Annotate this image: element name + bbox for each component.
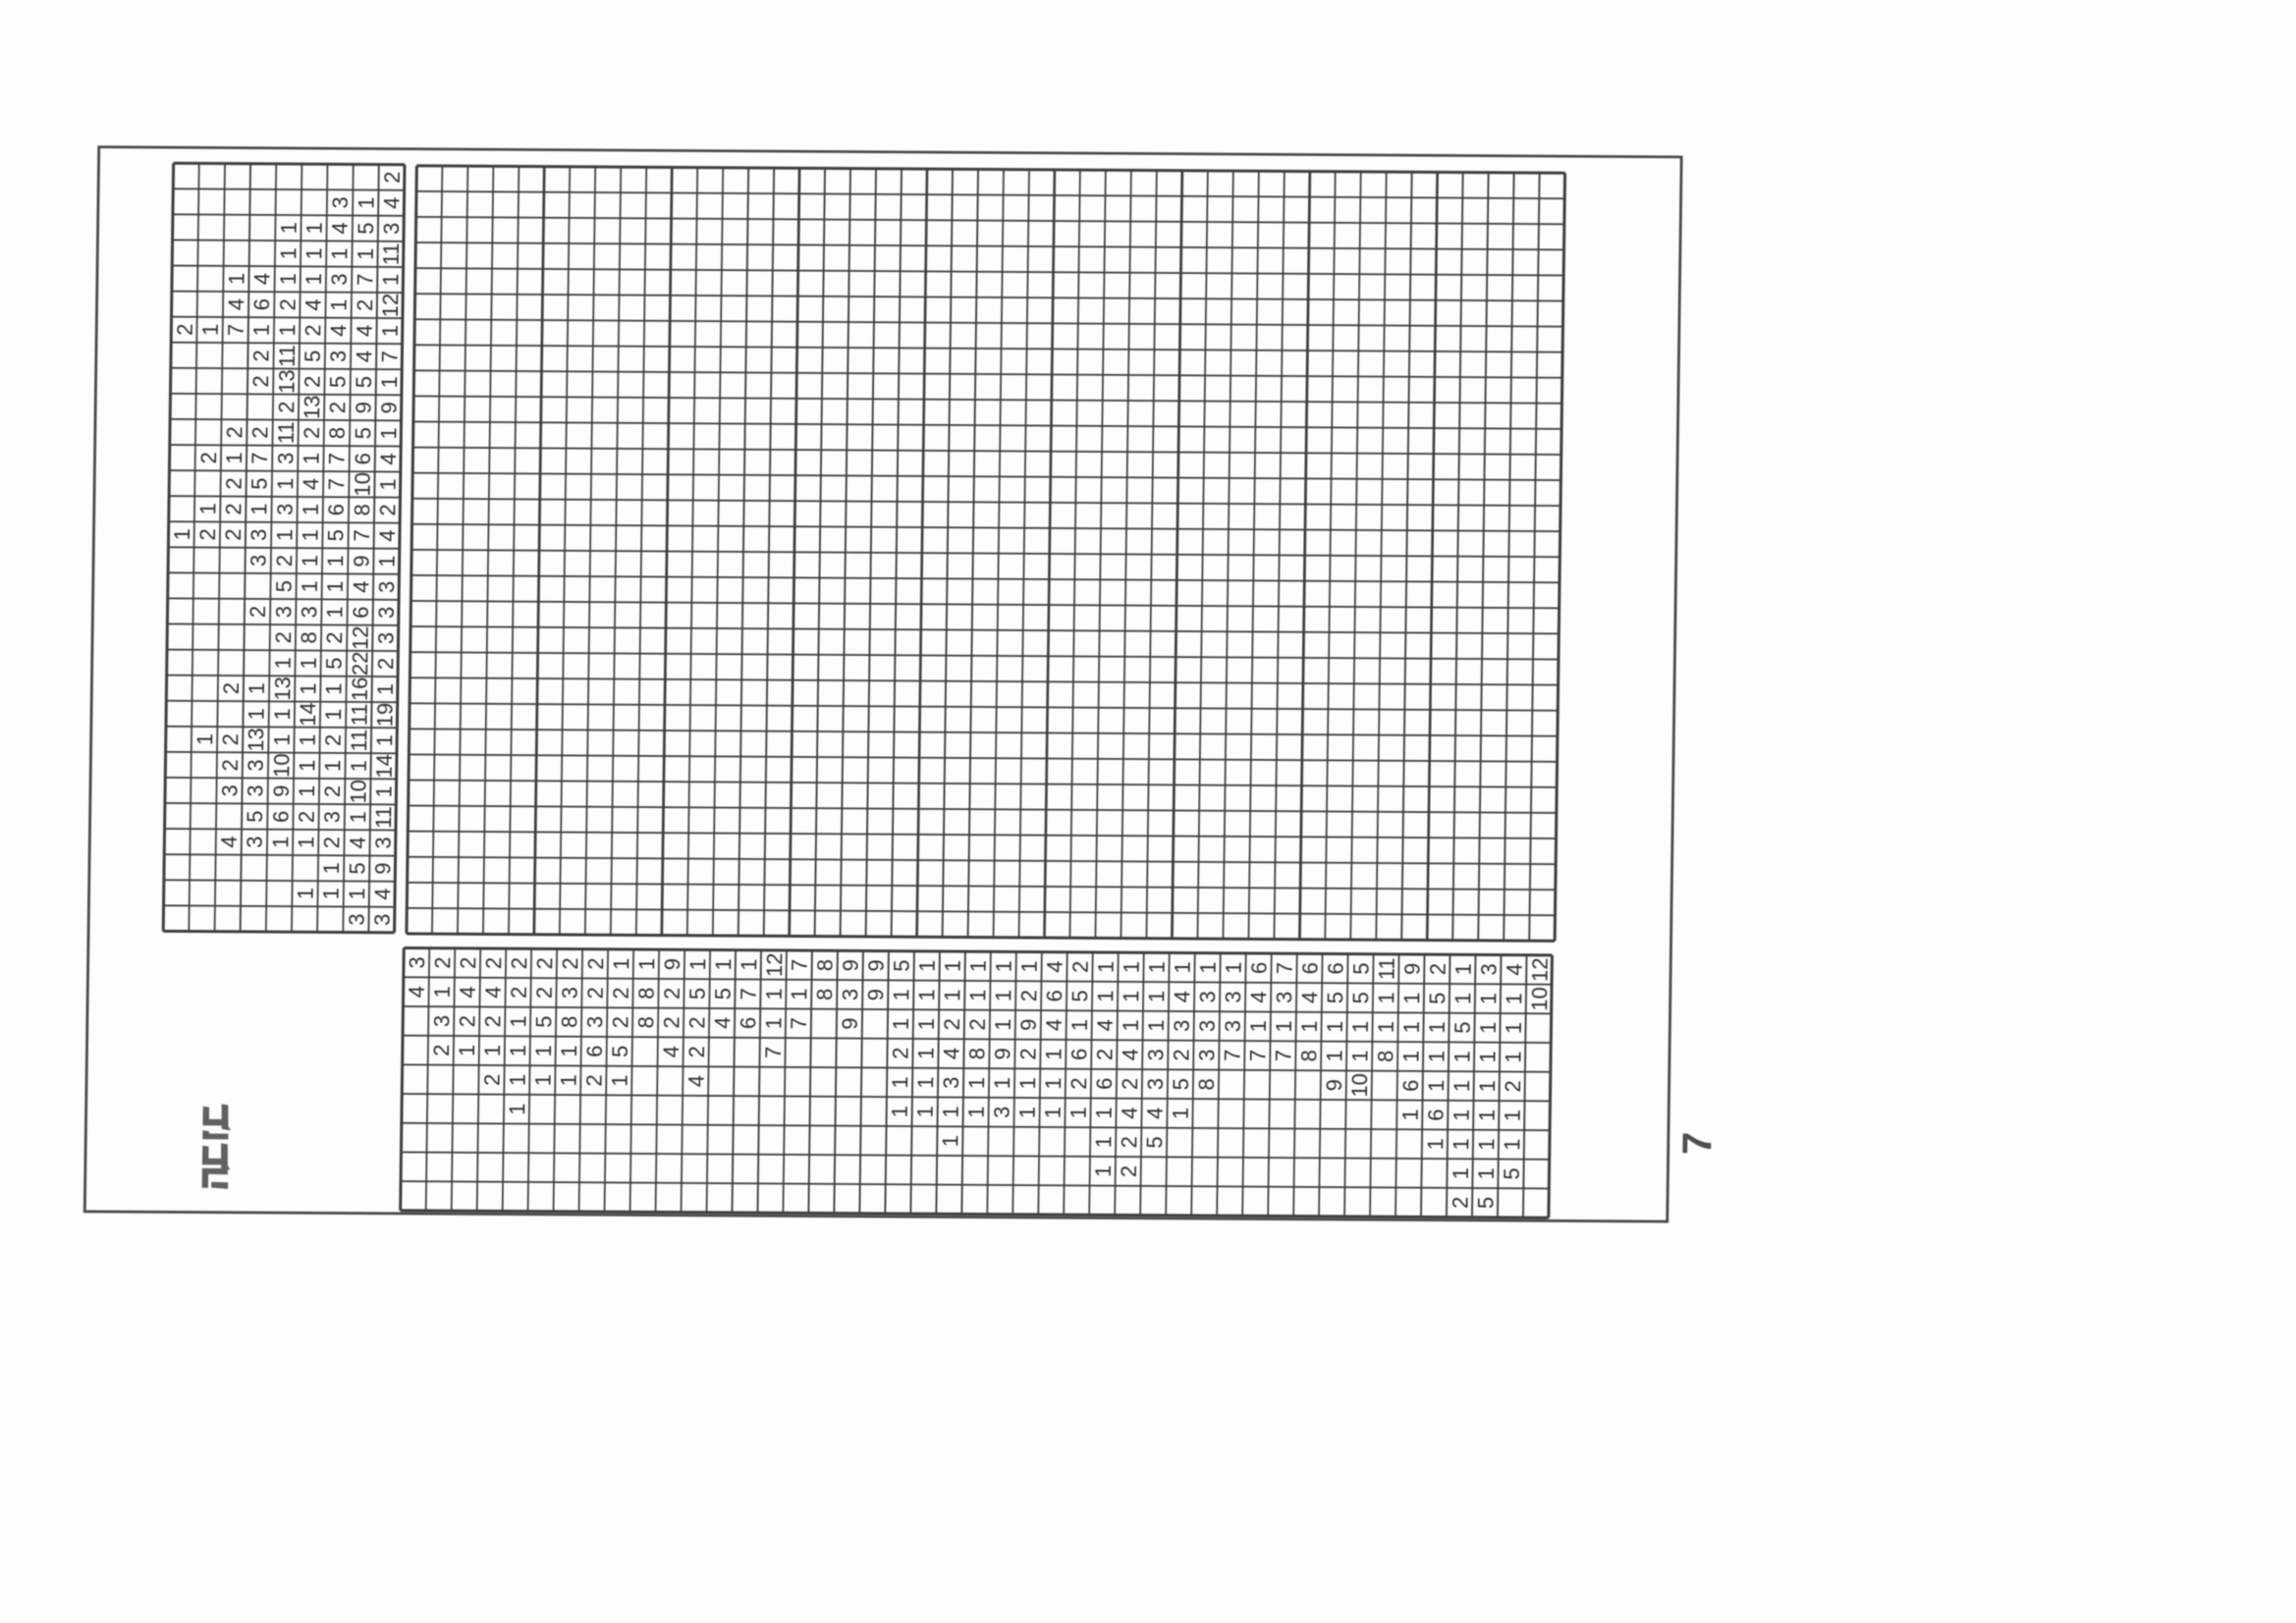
svg-text:3: 3 (1170, 1020, 1194, 1032)
svg-text:1: 1 (530, 1074, 555, 1086)
svg-text:1: 1 (1399, 992, 1424, 1003)
svg-text:1: 1 (556, 1074, 580, 1086)
svg-text:12: 12 (1527, 957, 1552, 982)
svg-text:1: 1 (1501, 1051, 1525, 1062)
svg-text:3: 3 (246, 555, 271, 567)
svg-text:1: 1 (295, 760, 319, 772)
svg-text:7: 7 (1273, 962, 1297, 974)
svg-text:6: 6 (736, 1017, 760, 1029)
svg-text:10: 10 (1527, 987, 1552, 1011)
svg-text:1: 1 (271, 657, 296, 669)
svg-text:2: 2 (1117, 1165, 1141, 1177)
svg-text:1: 1 (1323, 1021, 1347, 1033)
svg-text:5: 5 (243, 810, 267, 822)
svg-text:1: 1 (964, 1106, 989, 1117)
svg-text:7: 7 (1271, 1050, 1295, 1061)
svg-text:1: 1 (1015, 1077, 1040, 1089)
svg-text:7: 7 (247, 452, 272, 463)
svg-text:1: 1 (245, 682, 269, 694)
svg-text:1: 1 (376, 478, 401, 490)
svg-text:3: 3 (374, 607, 399, 619)
svg-text:1: 1 (915, 960, 940, 972)
svg-text:1: 1 (939, 1106, 963, 1117)
svg-text:1: 1 (192, 733, 217, 745)
svg-text:1: 1 (1399, 1021, 1424, 1033)
svg-text:7: 7 (761, 1047, 786, 1058)
svg-text:1: 1 (1450, 993, 1475, 1004)
svg-text:1: 1 (378, 274, 403, 286)
svg-text:7: 7 (350, 529, 374, 541)
svg-text:3: 3 (271, 606, 296, 618)
svg-text:2: 2 (222, 426, 246, 438)
svg-text:8: 8 (557, 1016, 581, 1028)
svg-text:2: 2 (1448, 1197, 1472, 1209)
svg-text:3: 3 (379, 223, 404, 235)
svg-text:1: 1 (1091, 1165, 1116, 1177)
svg-text:9: 9 (349, 555, 373, 567)
svg-text:4: 4 (481, 986, 506, 998)
svg-text:2: 2 (889, 1048, 913, 1059)
svg-text:16: 16 (348, 677, 372, 702)
svg-text:1: 1 (195, 503, 220, 514)
svg-text:3: 3 (558, 987, 582, 999)
svg-text:2: 2 (430, 956, 455, 968)
svg-text:1: 1 (222, 452, 246, 463)
svg-text:5: 5 (710, 988, 735, 1000)
svg-text:4: 4 (352, 325, 376, 337)
svg-text:2: 2 (1117, 1136, 1141, 1148)
svg-text:12: 12 (378, 294, 403, 318)
svg-text:3: 3 (838, 989, 862, 1001)
svg-text:6: 6 (1398, 1079, 1423, 1091)
svg-text:13: 13 (244, 728, 268, 752)
svg-text:1: 1 (761, 1017, 786, 1029)
svg-text:1: 1 (1347, 1051, 1372, 1062)
svg-text:6: 6 (1247, 962, 1272, 974)
svg-text:4: 4 (379, 197, 404, 209)
svg-text:2: 2 (1015, 1048, 1040, 1059)
svg-text:4: 4 (1246, 991, 1271, 1002)
svg-text:5: 5 (322, 657, 347, 669)
svg-text:1: 1 (1397, 1109, 1422, 1120)
svg-text:2: 2 (481, 957, 506, 969)
svg-text:10: 10 (350, 472, 374, 497)
svg-text:1: 1 (1092, 1107, 1117, 1118)
svg-text:1: 1 (1222, 962, 1246, 974)
svg-text:1: 1 (889, 1018, 913, 1030)
svg-text:6: 6 (1423, 1109, 1448, 1120)
svg-text:8: 8 (297, 631, 321, 643)
svg-text:3: 3 (297, 606, 321, 618)
svg-text:1: 1 (302, 222, 327, 234)
svg-text:3: 3 (1476, 963, 1501, 975)
svg-text:6: 6 (1066, 1049, 1091, 1060)
svg-text:3: 3 (370, 913, 395, 925)
svg-text:9: 9 (370, 862, 395, 874)
svg-text:13: 13 (274, 369, 299, 394)
svg-text:1: 1 (505, 1103, 529, 1114)
svg-text:1: 1 (965, 990, 990, 1001)
svg-text:3: 3 (939, 1077, 963, 1089)
svg-text:2: 2 (248, 375, 273, 387)
svg-text:1: 1 (372, 734, 397, 746)
svg-text:3: 3 (244, 784, 268, 796)
svg-text:6: 6 (268, 811, 293, 823)
svg-text:1: 1 (354, 196, 378, 208)
svg-text:1: 1 (1041, 1049, 1066, 1060)
svg-text:1: 1 (1425, 1021, 1449, 1033)
svg-text:1: 1 (295, 785, 319, 797)
svg-text:7: 7 (224, 324, 248, 336)
svg-text:7: 7 (324, 478, 349, 490)
svg-text:1: 1 (1500, 1109, 1524, 1121)
svg-text:2: 2 (583, 987, 608, 999)
svg-text:1: 1 (301, 247, 326, 259)
svg-text:1: 1 (225, 273, 249, 285)
svg-text:1: 1 (170, 528, 194, 540)
svg-text:1: 1 (990, 1077, 1014, 1089)
svg-text:1: 1 (1171, 961, 1195, 973)
svg-text:2: 2 (1016, 990, 1041, 1001)
svg-text:3: 3 (1221, 991, 1245, 1002)
svg-text:1: 1 (1450, 963, 1475, 975)
svg-text:11: 11 (347, 703, 371, 726)
svg-text:9: 9 (991, 1048, 1015, 1059)
svg-text:1: 1 (299, 504, 323, 515)
svg-text:3: 3 (273, 453, 298, 464)
svg-text:2: 2 (659, 1016, 683, 1028)
svg-text:4: 4 (328, 222, 353, 234)
svg-text:1: 1 (319, 862, 344, 874)
svg-text:1: 1 (1145, 961, 1170, 973)
svg-text:11: 11 (274, 421, 299, 444)
svg-text:5: 5 (1169, 1078, 1193, 1090)
svg-text:1: 1 (1502, 993, 1526, 1004)
svg-text:1: 1 (1093, 990, 1118, 1001)
svg-text:1: 1 (1246, 1020, 1271, 1032)
svg-text:1: 1 (1094, 961, 1119, 973)
svg-text:4: 4 (1297, 992, 1322, 1003)
svg-text:5: 5 (354, 222, 378, 234)
svg-text:2: 2 (222, 477, 246, 489)
svg-text:7: 7 (787, 1017, 811, 1029)
svg-text:1: 1 (557, 1045, 581, 1056)
svg-text:1: 1 (268, 837, 293, 848)
svg-text:8: 8 (634, 987, 659, 999)
svg-text:2: 2 (375, 504, 400, 515)
svg-text:5: 5 (1473, 1197, 1498, 1209)
svg-text:2: 2 (321, 734, 346, 746)
svg-text:1: 1 (787, 988, 811, 1000)
svg-text:1: 1 (1475, 1080, 1500, 1092)
svg-text:4: 4 (370, 888, 395, 899)
svg-text:5: 5 (684, 988, 709, 1000)
svg-text:5: 5 (1142, 1136, 1167, 1148)
svg-text:2: 2 (275, 298, 300, 310)
svg-text:1: 1 (991, 990, 1015, 1001)
svg-text:3: 3 (1143, 1049, 1168, 1060)
svg-text:3: 3 (327, 273, 352, 285)
svg-text:1: 1 (940, 989, 964, 1001)
svg-text:1: 1 (198, 324, 223, 336)
svg-text:1: 1 (889, 989, 913, 1001)
svg-text:3: 3 (1195, 991, 1220, 1002)
svg-text:8: 8 (633, 1016, 658, 1028)
svg-text:4: 4 (349, 580, 373, 592)
svg-text:1: 1 (276, 273, 301, 285)
svg-text:9: 9 (351, 402, 375, 413)
svg-text:1: 1 (941, 960, 965, 972)
svg-text:2: 2 (221, 528, 246, 540)
svg-text:3: 3 (1221, 1020, 1245, 1032)
svg-text:3: 3 (373, 632, 398, 644)
svg-text:3: 3 (1272, 992, 1296, 1003)
svg-text:6: 6 (582, 1046, 607, 1057)
svg-text:5: 5 (345, 862, 369, 874)
svg-text:2: 2 (221, 503, 246, 514)
svg-text:3: 3 (328, 196, 353, 208)
svg-text:1: 1 (378, 325, 403, 337)
svg-text:2: 2 (196, 452, 221, 463)
svg-text:1: 1 (294, 837, 318, 848)
svg-text:1: 1 (323, 606, 348, 618)
svg-text:7: 7 (1245, 1050, 1270, 1061)
svg-text:9: 9 (660, 958, 684, 970)
svg-text:2: 2 (940, 1018, 964, 1030)
svg-text:1: 1 (297, 657, 321, 669)
svg-text:7: 7 (736, 988, 760, 1000)
svg-text:2: 2 (1425, 963, 1449, 975)
svg-text:1: 1 (430, 986, 455, 998)
svg-text:1: 1 (319, 888, 344, 899)
svg-text:1: 1 (737, 958, 761, 970)
svg-text:1: 1 (1119, 991, 1143, 1002)
svg-text:1: 1 (1120, 961, 1144, 973)
svg-text:1: 1 (323, 580, 348, 592)
svg-text:9: 9 (377, 402, 402, 413)
svg-text:3: 3 (405, 956, 429, 968)
svg-text:1: 1 (1424, 1080, 1449, 1092)
svg-text:1: 1 (506, 1015, 530, 1027)
svg-text:14: 14 (296, 702, 320, 727)
svg-text:1: 1 (1015, 1107, 1040, 1118)
svg-text:1: 1 (321, 709, 346, 721)
svg-text:3: 3 (1143, 1078, 1168, 1090)
svg-text:1: 1 (964, 1077, 989, 1089)
svg-text:5: 5 (1323, 992, 1347, 1003)
svg-text:3: 3 (344, 913, 368, 925)
svg-text:3: 3 (374, 581, 399, 593)
svg-text:2: 2 (507, 987, 531, 999)
svg-text:2: 2 (325, 402, 350, 413)
svg-text:9: 9 (864, 959, 889, 971)
svg-text:1: 1 (1474, 1167, 1499, 1179)
svg-text:1: 1 (1374, 1021, 1398, 1033)
svg-text:3: 3 (1195, 1020, 1220, 1032)
svg-text:6: 6 (349, 607, 373, 619)
svg-text:4: 4 (1502, 963, 1526, 975)
svg-text:7: 7 (1220, 1050, 1244, 1061)
svg-text:1: 1 (1474, 1138, 1499, 1150)
svg-text:3: 3 (320, 811, 345, 823)
svg-text:5: 5 (301, 351, 325, 362)
svg-text:6: 6 (324, 504, 349, 515)
svg-text:1: 1 (1297, 1020, 1322, 1032)
svg-text:1: 1 (634, 958, 659, 970)
svg-text:5: 5 (890, 959, 914, 971)
svg-text:2: 2 (532, 957, 557, 969)
svg-text:2: 2 (965, 1018, 990, 1030)
svg-text:1: 1 (245, 708, 269, 720)
svg-text:11: 11 (275, 345, 300, 367)
svg-text:2: 2 (249, 350, 274, 361)
svg-text:1: 1 (1144, 1019, 1169, 1031)
svg-text:4: 4 (659, 1046, 683, 1057)
svg-text:1: 1 (296, 682, 320, 694)
svg-text:5: 5 (352, 376, 376, 388)
svg-text:4: 4 (375, 529, 400, 541)
svg-text:4: 4 (1118, 1107, 1142, 1118)
svg-text:3: 3 (1194, 1050, 1219, 1061)
svg-text:7: 7 (1673, 1132, 1720, 1156)
svg-text:1: 1 (888, 1076, 912, 1088)
svg-text:2: 2 (684, 1016, 709, 1028)
svg-text:1: 1 (1272, 1020, 1296, 1032)
svg-text:8: 8 (1296, 1050, 1321, 1061)
svg-text:10: 10 (269, 753, 294, 778)
svg-text:7: 7 (788, 959, 812, 971)
svg-text:5: 5 (1348, 992, 1373, 1003)
svg-text:9: 9 (1322, 1079, 1346, 1091)
svg-text:1: 1 (480, 1045, 505, 1056)
svg-text:1: 1 (888, 1106, 912, 1117)
svg-text:4: 4 (224, 298, 248, 310)
svg-text:9: 9 (839, 959, 863, 971)
svg-text:1: 1 (301, 273, 326, 285)
svg-text:1: 1 (296, 734, 320, 746)
svg-text:5: 5 (1348, 962, 1373, 974)
svg-text:7: 7 (325, 453, 350, 464)
svg-text:2: 2 (456, 957, 480, 969)
svg-text:1: 1 (272, 529, 297, 541)
svg-text:4: 4 (456, 986, 480, 998)
svg-text:2: 2 (195, 528, 220, 540)
svg-text:4: 4 (405, 986, 429, 998)
svg-text:2: 2 (380, 171, 405, 183)
svg-text:4: 4 (250, 273, 275, 285)
svg-text:2: 2 (373, 658, 398, 670)
svg-text:1: 1 (966, 960, 991, 972)
svg-text:8: 8 (350, 504, 374, 515)
svg-text:9: 9 (1399, 963, 1424, 975)
svg-text:2: 2 (608, 1016, 632, 1028)
svg-text:1: 1 (761, 988, 786, 1000)
svg-text:8: 8 (812, 989, 837, 1001)
svg-text:1: 1 (345, 888, 369, 899)
svg-text:1: 1 (298, 529, 322, 541)
svg-text:1: 1 (1196, 961, 1221, 973)
svg-text:1: 1 (276, 247, 301, 259)
svg-text:1: 1 (298, 580, 322, 592)
svg-text:3: 3 (429, 1015, 454, 1027)
svg-text:1: 1 (270, 708, 295, 720)
svg-text:1: 1 (273, 478, 298, 490)
svg-text:6: 6 (1092, 1078, 1117, 1090)
svg-text:12: 12 (348, 625, 372, 650)
svg-text:2: 2 (1118, 1078, 1142, 1090)
svg-text:1: 1 (376, 427, 401, 439)
svg-text:4: 4 (301, 298, 326, 310)
svg-text:5: 5 (531, 1015, 556, 1027)
svg-text:2: 2 (1066, 1077, 1091, 1089)
svg-text:9: 9 (838, 1017, 862, 1029)
svg-text:1: 1 (1449, 1051, 1474, 1062)
svg-text:1: 1 (377, 376, 402, 388)
svg-text:5: 5 (1067, 990, 1092, 1001)
svg-text:3: 3 (371, 837, 396, 848)
svg-text:1: 1 (1017, 960, 1042, 972)
svg-text:13: 13 (270, 676, 295, 701)
svg-text:2: 2 (1068, 961, 1093, 973)
svg-text:1: 1 (914, 1018, 939, 1030)
svg-text:1: 1 (914, 1048, 939, 1059)
svg-text:1: 1 (327, 247, 352, 259)
svg-text:1: 1 (298, 555, 322, 567)
svg-text:13: 13 (300, 396, 324, 420)
svg-text:1: 1 (1476, 993, 1501, 1004)
svg-text:2: 2 (1169, 1049, 1193, 1060)
svg-text:2: 2 (300, 427, 324, 439)
svg-text:9: 9 (1016, 1019, 1041, 1031)
svg-text:4: 4 (352, 351, 376, 362)
svg-text:2: 2 (295, 811, 319, 823)
svg-text:2: 2 (532, 987, 557, 999)
svg-text:1: 1 (1449, 1080, 1474, 1092)
svg-text:1: 1 (913, 1076, 938, 1088)
svg-text:1: 1 (322, 683, 347, 695)
svg-text:1: 1 (1449, 1109, 1473, 1121)
svg-text:1: 1 (531, 1045, 556, 1056)
svg-text:1: 1 (609, 958, 633, 970)
svg-text:1: 1 (347, 760, 371, 772)
svg-text:2: 2 (301, 324, 325, 336)
svg-text:4: 4 (1118, 1049, 1142, 1060)
svg-text:1: 1 (938, 1135, 962, 1147)
svg-text:12: 12 (762, 952, 787, 977)
svg-text:8: 8 (1194, 1078, 1219, 1090)
svg-text:9: 9 (863, 989, 888, 1001)
svg-text:1: 1 (1169, 1108, 1193, 1119)
svg-text:1: 1 (246, 504, 271, 515)
svg-text:1: 1 (1041, 1077, 1066, 1089)
svg-text:1: 1 (685, 958, 710, 970)
svg-text:9: 9 (269, 785, 294, 797)
svg-text:1: 1 (249, 324, 274, 336)
svg-text:10: 10 (346, 780, 370, 804)
svg-text:2: 2 (479, 1074, 504, 1086)
svg-text:5: 5 (608, 1046, 632, 1057)
svg-text:4: 4 (217, 836, 242, 847)
svg-text:3: 3 (582, 1016, 607, 1028)
svg-text:5: 5 (351, 427, 375, 439)
svg-text:22: 22 (348, 652, 372, 676)
svg-text:6: 6 (1323, 962, 1347, 974)
svg-text:2: 2 (218, 733, 243, 745)
svg-text:4: 4 (1143, 1108, 1168, 1119)
svg-text:1: 1 (1041, 1107, 1066, 1118)
svg-text:10: 10 (1347, 1073, 1372, 1098)
svg-text:3: 3 (218, 784, 243, 796)
